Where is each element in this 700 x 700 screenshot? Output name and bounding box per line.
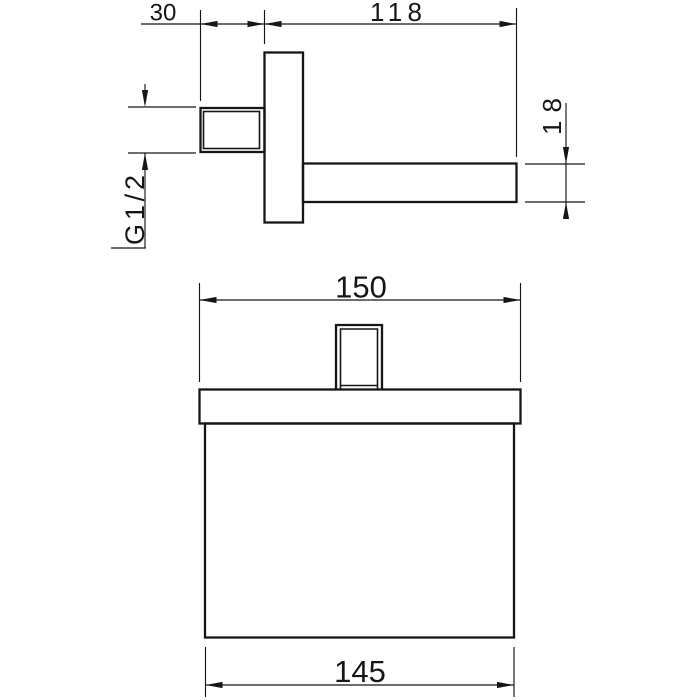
arrowhead-left-icon (201, 21, 218, 27)
dim-label-18: 18 (537, 98, 567, 135)
arrowhead-up-icon (563, 202, 569, 219)
arrowhead-up-icon (142, 153, 148, 170)
thread-callout-g12: G1/2 (111, 84, 196, 248)
arrowhead-down-icon (142, 90, 148, 107)
dimension-30: 30 (141, 0, 517, 101)
thread-size-label: G1/2 (120, 175, 150, 245)
dim-label-150: 150 (335, 270, 387, 305)
dim-label-118: 118 (370, 0, 422, 27)
dimension-18: 18 (525, 98, 585, 219)
arrowhead-right-icon (497, 682, 514, 688)
arrowhead-right-icon (500, 21, 517, 27)
mounting-plate-outline (200, 390, 521, 424)
dim-label-30: 30 (150, 0, 177, 27)
front-view: 150 145 (200, 270, 521, 698)
arrowhead-right-icon (248, 21, 265, 27)
thread-fitting-front-outline (336, 325, 382, 390)
technical-drawing-canvas: 30 118 G1/2 (0, 0, 700, 700)
thread-fitting-outline (201, 108, 265, 152)
side-view: 30 118 G1/2 (111, 0, 585, 248)
arrowhead-left-icon (200, 297, 217, 303)
thread-fitting-front-inner-line (341, 329, 378, 390)
thread-fitting-inner-line (204, 112, 260, 149)
dim-label-145: 145 (334, 654, 386, 689)
body-outline (205, 424, 514, 638)
arrowhead-down-icon (563, 147, 569, 164)
wall-plate-outline (265, 53, 304, 223)
arrowhead-right-icon (504, 297, 521, 303)
dimension-145: 145 (206, 647, 515, 697)
arrowhead-left-icon (206, 682, 223, 688)
arm-outline (303, 164, 517, 203)
arrowhead-left-icon (265, 21, 282, 27)
fixture-dimension-drawing: 30 118 G1/2 (0, 0, 700, 700)
